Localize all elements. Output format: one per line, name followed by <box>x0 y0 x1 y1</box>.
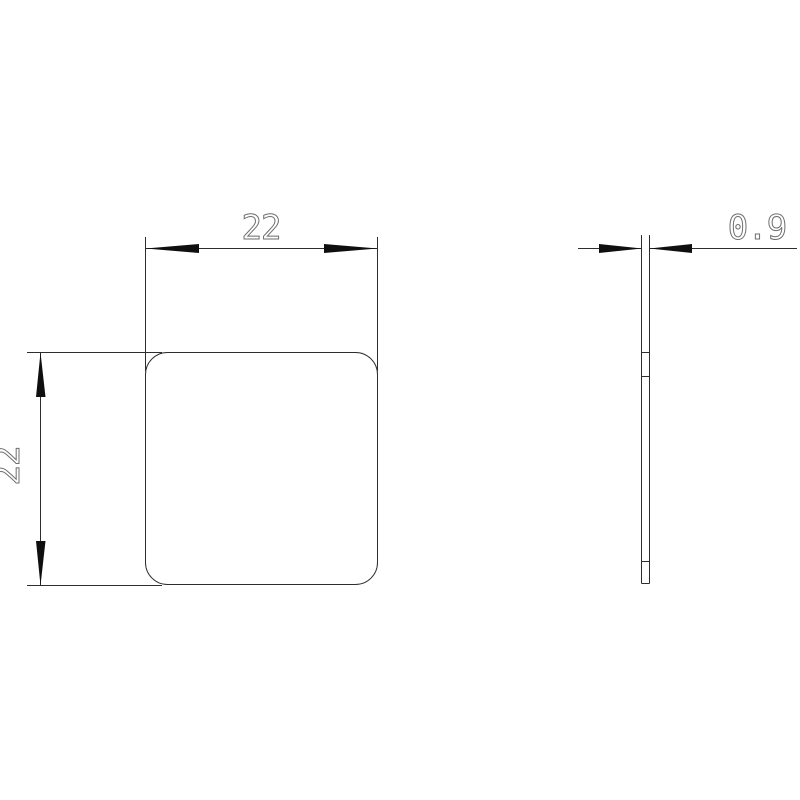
arrow-left-icon <box>650 244 693 253</box>
arrow-up-icon <box>36 353 46 398</box>
height-dimension-label: 22 <box>0 447 28 486</box>
technical-drawing: 22 22 0.9 <box>0 0 800 800</box>
plate-front-outline <box>146 353 378 585</box>
side-view <box>642 235 650 584</box>
arrow-left-icon <box>146 244 200 253</box>
width-dimension: 22 <box>146 208 378 371</box>
front-view <box>146 353 378 585</box>
thickness-dimension-label: 0.9 <box>728 208 786 248</box>
width-dimension-label: 22 <box>242 208 281 248</box>
height-dimension: 22 <box>0 353 162 586</box>
arrow-right-icon <box>324 244 378 253</box>
arrow-down-icon <box>36 541 46 586</box>
thickness-dimension: 0.9 <box>578 208 797 253</box>
arrow-right-icon <box>599 244 642 253</box>
drawing-canvas: 22 22 0.9 <box>0 0 800 800</box>
